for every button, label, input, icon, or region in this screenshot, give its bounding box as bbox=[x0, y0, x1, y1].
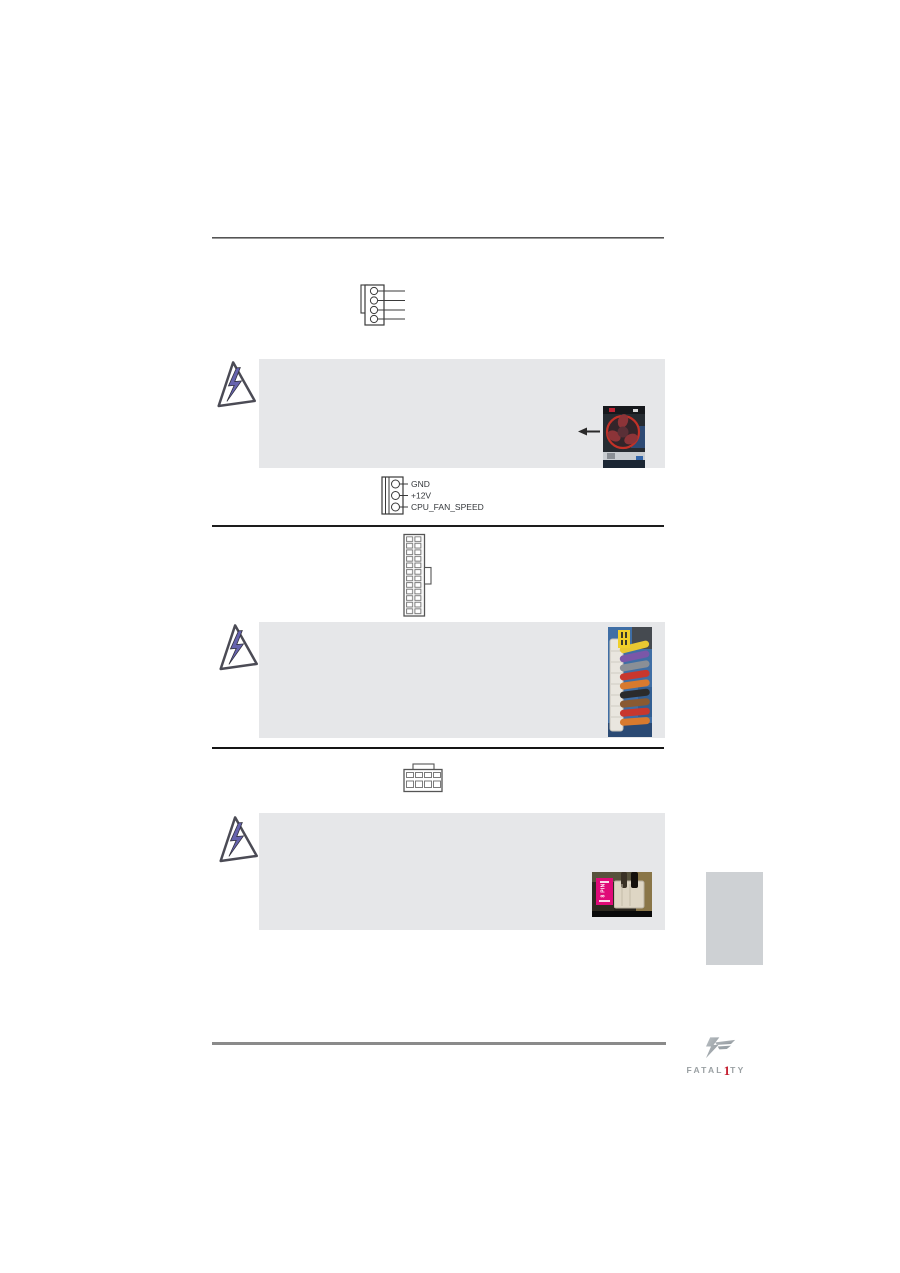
section-divider-2 bbox=[212, 747, 664, 749]
cpu-fan-connector-3pin-icon: GND +12V CPU_FAN_SPEED bbox=[377, 475, 502, 517]
caution-note-box-2 bbox=[259, 622, 665, 738]
power-8pin-photo: 8 PIN bbox=[592, 872, 652, 917]
warning-icon bbox=[213, 810, 259, 867]
page-edge-tab bbox=[706, 872, 763, 965]
cpu-fan-connector-4pin-icon bbox=[358, 281, 408, 327]
left-arrow-icon bbox=[577, 425, 601, 438]
section-divider-top bbox=[212, 237, 664, 239]
logo-text-part1: FATAL bbox=[687, 1065, 724, 1075]
photo-label-yellow bbox=[618, 630, 630, 648]
page-footer-rule bbox=[212, 1042, 666, 1045]
photo-label-8pin: 8 PIN bbox=[596, 878, 613, 905]
pin-label-gnd: GND bbox=[411, 479, 430, 489]
fatal1ty-logo-icon bbox=[696, 1036, 736, 1062]
atx-8pin-connector-icon bbox=[402, 762, 444, 794]
pin-label-12v: +12V bbox=[411, 491, 431, 501]
warning-icon bbox=[213, 618, 259, 675]
fatal1ty-logo-text: FATAL1TY bbox=[684, 1063, 748, 1079]
atx-power-cable-photo bbox=[608, 627, 652, 737]
section-divider-1 bbox=[212, 525, 664, 527]
warning-icon bbox=[211, 355, 257, 412]
logo-text-part2: TY bbox=[730, 1065, 745, 1075]
cpu-fan-photo bbox=[603, 406, 645, 468]
manual-page: GND +12V CPU_FAN_SPEED bbox=[0, 0, 900, 1273]
fatal1ty-logo: FATAL1TY bbox=[684, 1036, 748, 1082]
atx-24pin-connector-icon bbox=[402, 533, 434, 618]
pin-label-cpu-fan-speed: CPU_FAN_SPEED bbox=[411, 502, 484, 512]
